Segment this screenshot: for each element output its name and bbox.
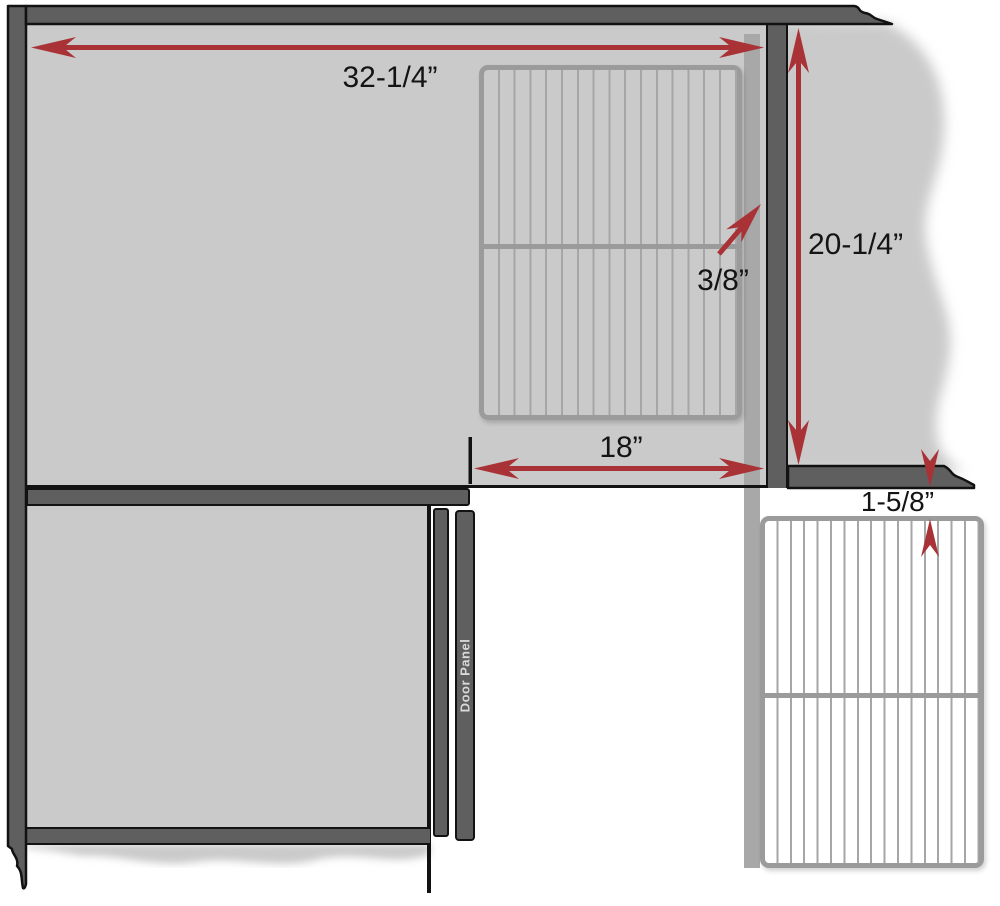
- label-height-right: 20-1/4”: [808, 228, 903, 262]
- upper-grille-slats: [484, 70, 737, 415]
- lower-grille-slats: [765, 521, 979, 863]
- door-panel: Door Panel: [455, 510, 475, 841]
- floor-fade-surface: [26, 844, 430, 864]
- divider-panel: [766, 23, 788, 488]
- lower-cabinet-bottom-bar: [26, 827, 430, 845]
- lower-vent-grille: [760, 516, 984, 868]
- label-bottom-gap: 1-5/8”: [840, 486, 955, 518]
- cutout-dimension-diagram: Door Panel: [0, 0, 1000, 906]
- cabinet-side-stile: [433, 508, 449, 837]
- lower-cabinet-face: [26, 506, 429, 827]
- label-width-top: 32-1/4”: [300, 61, 480, 95]
- upper-vent-grille: [479, 65, 742, 420]
- filler-strip: [744, 34, 760, 868]
- label-divider-gap: 3/8”: [680, 264, 766, 298]
- upper-grille-mid-rail: [484, 244, 737, 249]
- lower-grille-mid-rail: [765, 693, 979, 698]
- mid-shelf-bar: [26, 488, 470, 506]
- label-grille-width: 18”: [581, 431, 661, 465]
- door-panel-label: Door Panel: [458, 639, 473, 713]
